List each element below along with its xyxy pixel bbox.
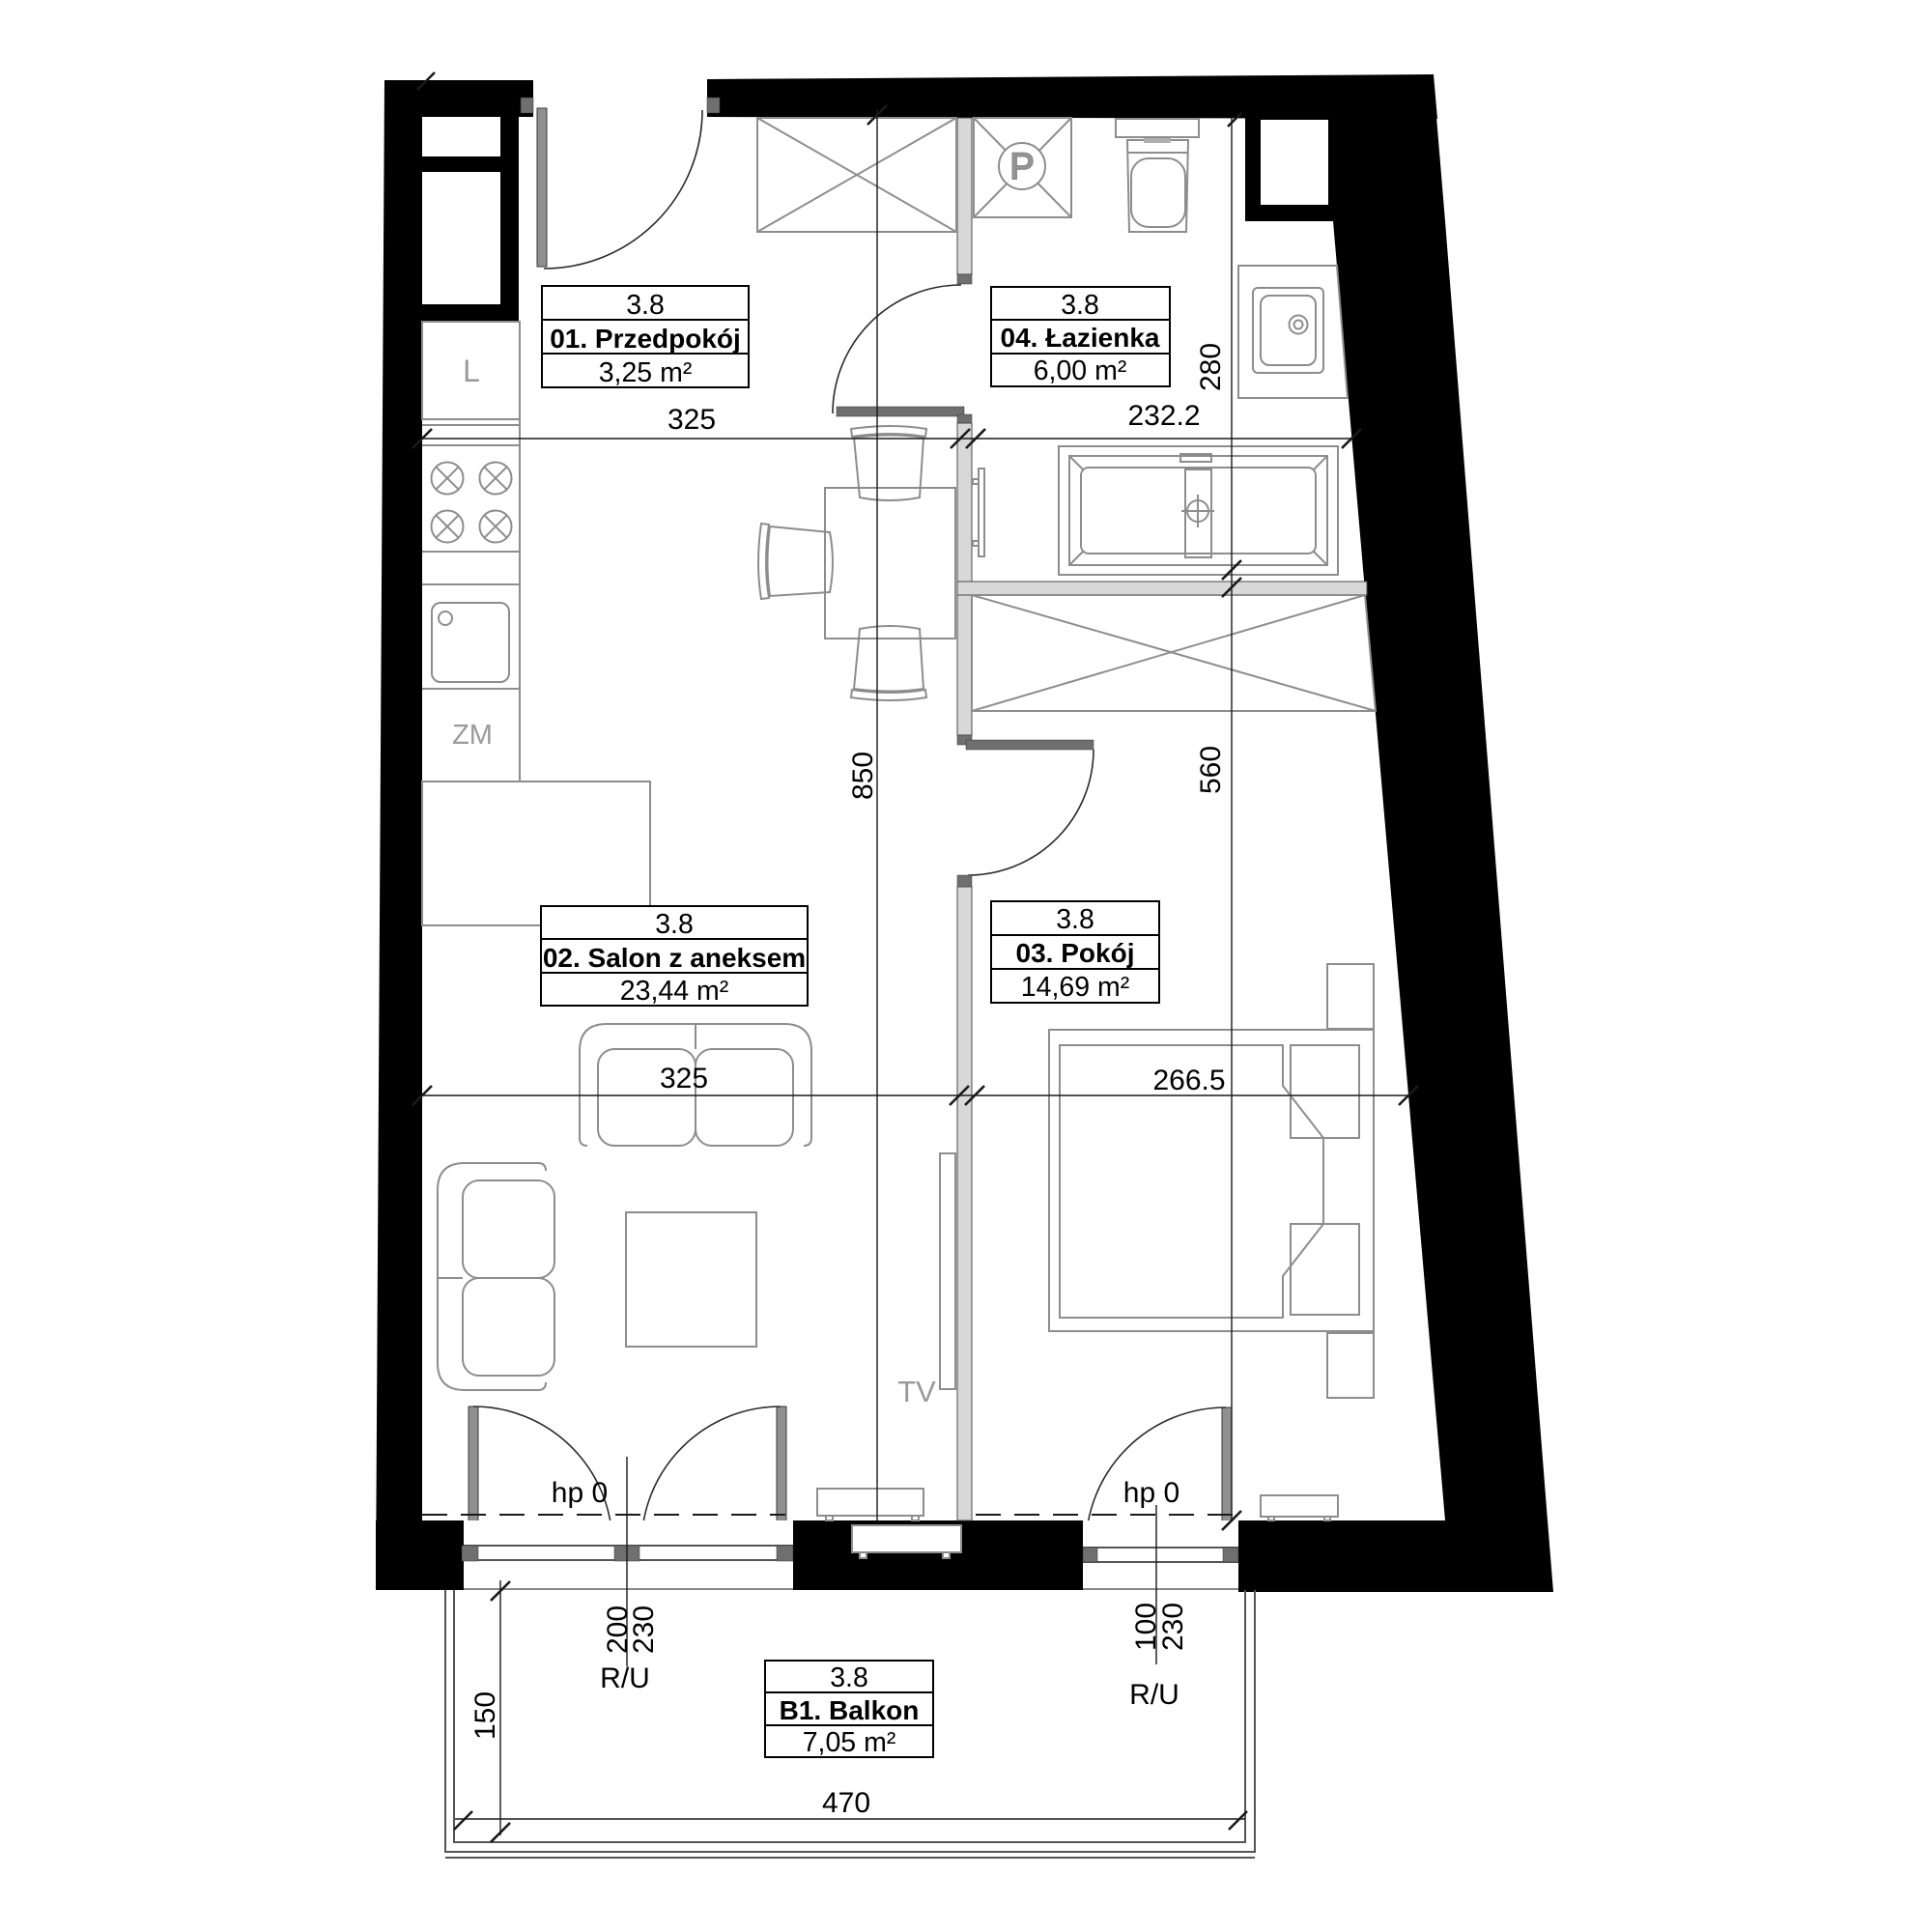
svg-text:230: 230 (1157, 1603, 1189, 1651)
svg-text:03. Pokój: 03. Pokój (1016, 938, 1135, 968)
svg-text:280: 280 (1195, 343, 1227, 391)
svg-text:hp 0: hp 0 (552, 1477, 608, 1509)
svg-text:02. Salon z aneksem: 02. Salon z aneksem (543, 943, 806, 973)
svg-text:325: 325 (668, 404, 716, 436)
svg-text:3.8: 3.8 (626, 290, 665, 321)
svg-text:R/U: R/U (1129, 1679, 1179, 1711)
svg-text:470: 470 (822, 1787, 870, 1819)
svg-text:ZM: ZM (452, 720, 493, 751)
svg-text:7,05 m²: 7,05 m² (803, 1727, 896, 1758)
svg-text:3.8: 3.8 (1056, 904, 1094, 935)
svg-text:3.8: 3.8 (1061, 290, 1099, 321)
svg-text:R/U: R/U (600, 1662, 650, 1694)
svg-text:150: 150 (469, 1691, 501, 1740)
svg-text:04. Łazienka: 04. Łazienka (1001, 323, 1160, 353)
svg-text:850: 850 (847, 752, 879, 800)
svg-text:L: L (463, 354, 480, 388)
svg-text:TV: TV (897, 1375, 936, 1408)
svg-text:3.8: 3.8 (830, 1662, 868, 1693)
svg-text:B1. Balkon: B1. Balkon (780, 1695, 920, 1725)
svg-text:01. Przedpokój: 01. Przedpokój (550, 324, 741, 354)
svg-text:hp 0: hp 0 (1123, 1477, 1179, 1509)
svg-text:3.8: 3.8 (655, 909, 694, 940)
svg-text:230: 230 (628, 1605, 660, 1654)
svg-text:232.2: 232.2 (1127, 400, 1200, 432)
svg-text:325: 325 (660, 1063, 708, 1094)
svg-text:23,44 m²: 23,44 m² (620, 976, 728, 1007)
svg-text:P: P (1009, 147, 1034, 187)
svg-text:14,69 m²: 14,69 m² (1021, 972, 1129, 1003)
svg-text:3,25 m²: 3,25 m² (599, 357, 693, 388)
svg-text:6,00 m²: 6,00 m² (1034, 355, 1127, 386)
svg-text:560: 560 (1195, 746, 1227, 794)
svg-text:266.5: 266.5 (1152, 1065, 1225, 1096)
